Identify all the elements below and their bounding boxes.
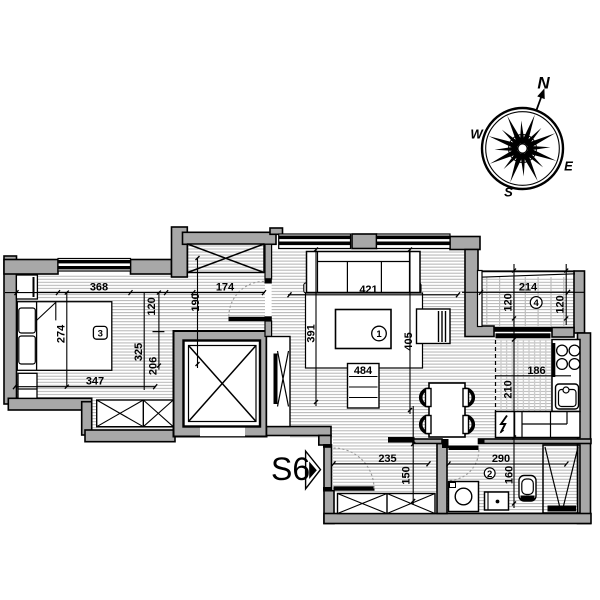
svg-text:E: E bbox=[564, 159, 573, 174]
svg-text:210: 210 bbox=[503, 380, 515, 398]
svg-text:391: 391 bbox=[306, 324, 318, 342]
svg-text:150: 150 bbox=[401, 466, 413, 484]
svg-text:120: 120 bbox=[503, 293, 515, 311]
svg-text:421: 421 bbox=[359, 284, 377, 296]
svg-text:274: 274 bbox=[56, 324, 68, 343]
svg-text:405: 405 bbox=[403, 332, 415, 350]
svg-text:235: 235 bbox=[378, 453, 396, 465]
svg-text:174: 174 bbox=[216, 282, 235, 294]
svg-text:368: 368 bbox=[90, 282, 108, 294]
svg-text:190: 190 bbox=[190, 293, 202, 311]
svg-text:186: 186 bbox=[527, 365, 545, 377]
svg-text:S: S bbox=[504, 185, 513, 200]
svg-text:S6: S6 bbox=[271, 451, 310, 487]
svg-text:206: 206 bbox=[148, 357, 160, 375]
svg-text:120: 120 bbox=[555, 295, 567, 313]
svg-text:N: N bbox=[537, 74, 550, 93]
svg-text:160: 160 bbox=[504, 466, 516, 484]
svg-text:2: 2 bbox=[487, 469, 492, 480]
svg-text:214: 214 bbox=[519, 281, 538, 293]
svg-text:347: 347 bbox=[86, 376, 104, 388]
svg-text:1: 1 bbox=[376, 329, 382, 340]
svg-text:290: 290 bbox=[492, 453, 510, 465]
svg-text:3: 3 bbox=[98, 329, 103, 340]
svg-text:120: 120 bbox=[146, 297, 158, 315]
svg-text:484: 484 bbox=[354, 365, 373, 377]
svg-text:4: 4 bbox=[534, 298, 540, 309]
svg-text:W: W bbox=[470, 127, 484, 142]
svg-text:325: 325 bbox=[133, 343, 145, 361]
